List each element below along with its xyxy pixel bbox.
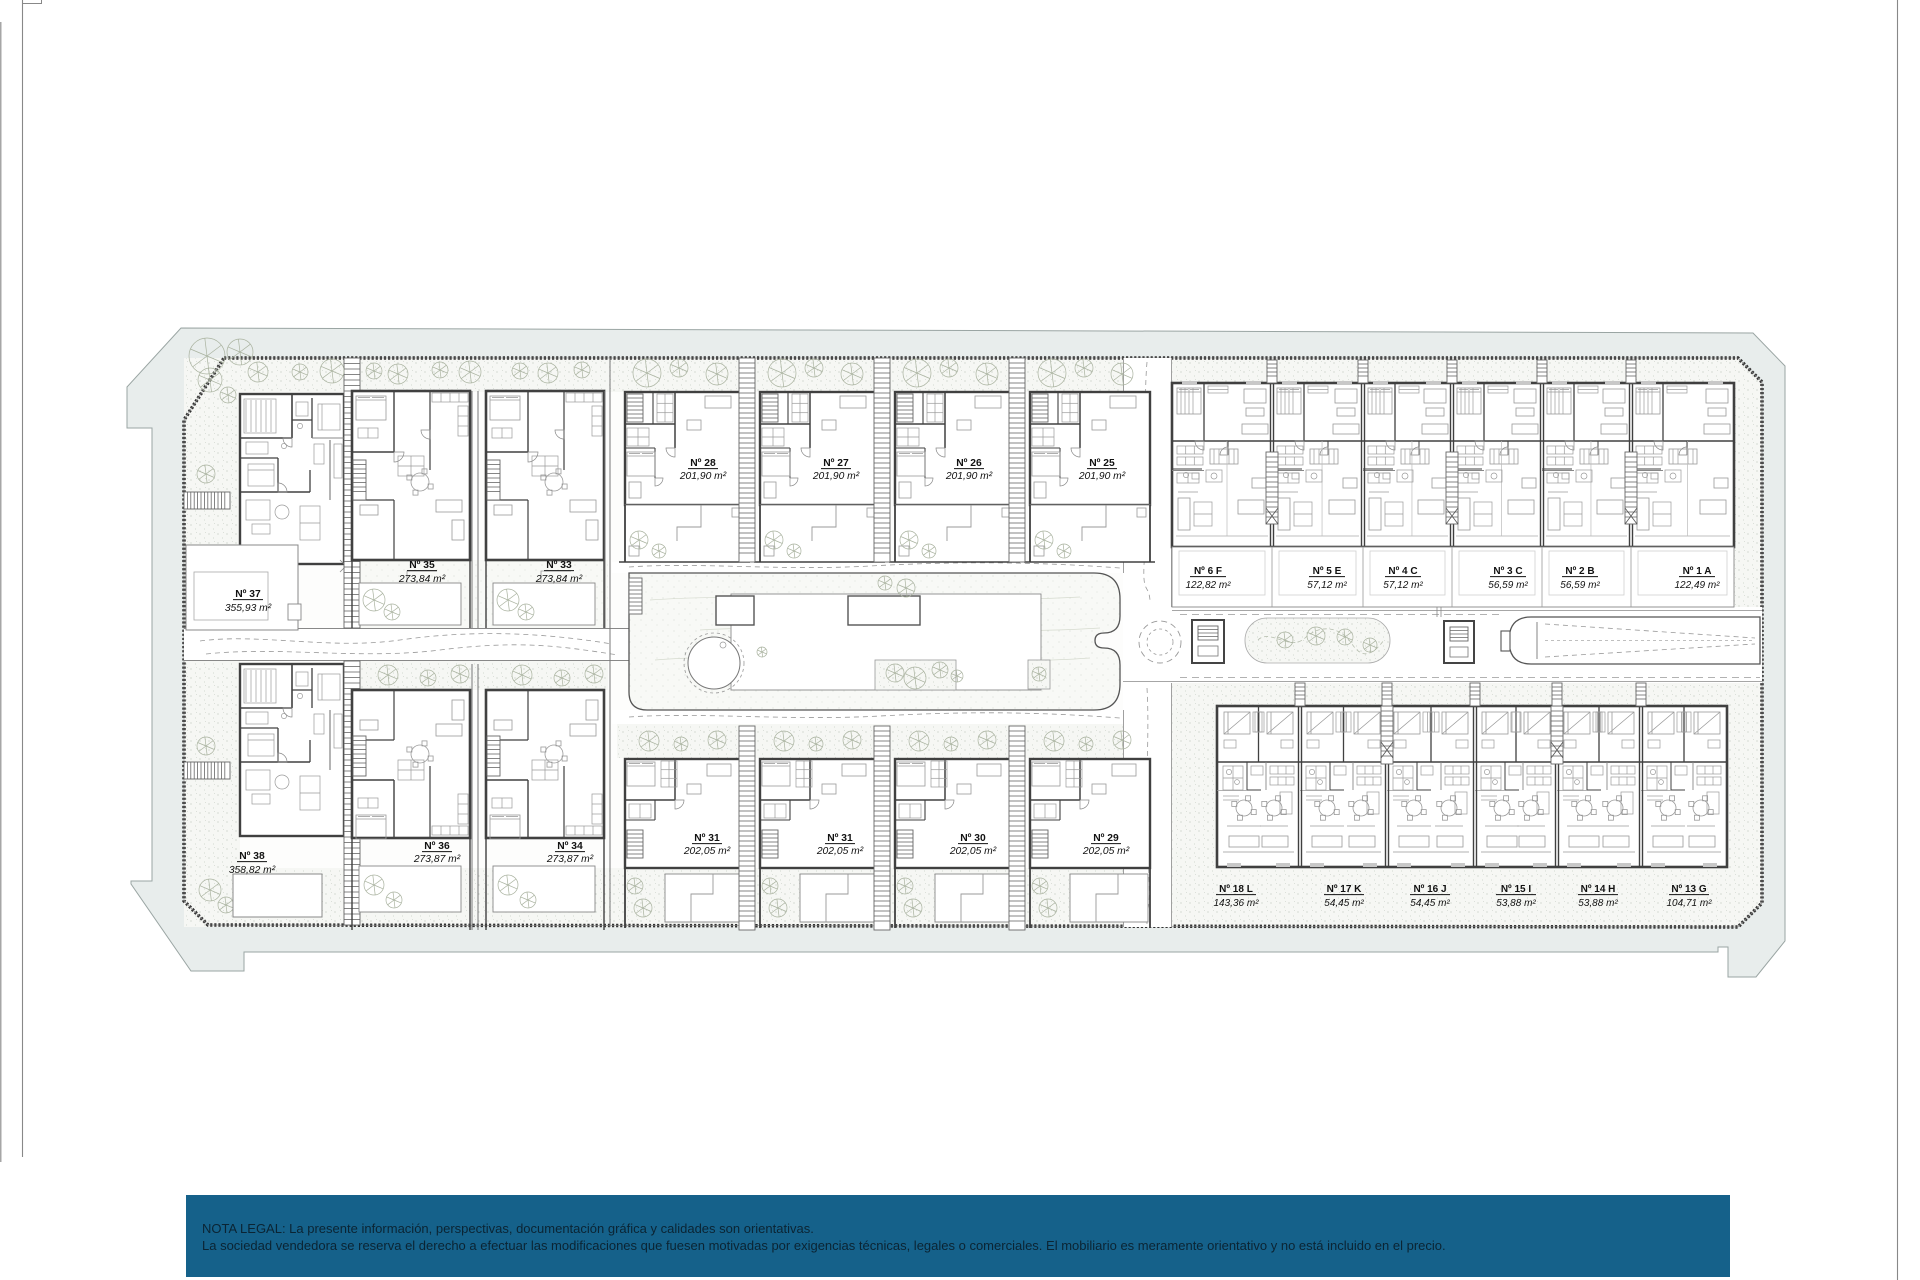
svg-text:273,87 m²: 273,87 m² [546, 854, 594, 865]
svg-text:122,82 m²: 122,82 m² [1185, 580, 1231, 591]
svg-text:Nº 35: Nº 35 [409, 560, 435, 571]
svg-text:Nº 16 J: Nº 16 J [1413, 884, 1446, 895]
svg-text:Nº 28: Nº 28 [690, 458, 716, 469]
svg-text:201,90 m²: 201,90 m² [812, 471, 860, 482]
svg-text:201,90 m²: 201,90 m² [679, 471, 727, 482]
svg-text:Nº 34: Nº 34 [557, 841, 583, 852]
svg-text:202,05 m²: 202,05 m² [1082, 846, 1130, 857]
svg-text:Nº 6 F: Nº 6 F [1194, 566, 1222, 577]
svg-text:Nº 36: Nº 36 [424, 841, 450, 852]
svg-text:122,49 m²: 122,49 m² [1674, 580, 1720, 591]
svg-text:273,84 m²: 273,84 m² [535, 574, 583, 585]
svg-text:Nº 5 E: Nº 5 E [1313, 566, 1342, 577]
svg-text:Nº 37: Nº 37 [235, 589, 261, 600]
svg-text:Nº 15 I: Nº 15 I [1501, 884, 1532, 895]
svg-text:Nº 25: Nº 25 [1089, 458, 1115, 469]
svg-text:57,12 m²: 57,12 m² [1307, 580, 1347, 591]
svg-text:202,05 m²: 202,05 m² [683, 846, 731, 857]
svg-text:202,05 m²: 202,05 m² [816, 846, 864, 857]
svg-text:Nº 18 L: Nº 18 L [1219, 884, 1253, 895]
svg-text:La sociedad vendedora se reser: La sociedad vendedora se reserva el dere… [202, 1238, 1446, 1253]
svg-text:Nº 26: Nº 26 [956, 458, 982, 469]
svg-text:Nº 38: Nº 38 [239, 851, 265, 862]
svg-text:355,93 m²: 355,93 m² [225, 603, 272, 614]
svg-text:201,90 m²: 201,90 m² [1078, 471, 1126, 482]
svg-text:Nº 17 K: Nº 17 K [1327, 884, 1363, 895]
svg-text:358,82 m²: 358,82 m² [229, 865, 276, 876]
svg-text:NOTA LEGAL: La presente inform: NOTA LEGAL: La presente información, per… [202, 1221, 814, 1236]
svg-text:Nº 14 H: Nº 14 H [1581, 884, 1616, 895]
svg-text:54,45 m²: 54,45 m² [1410, 898, 1450, 909]
svg-text:Nº 27: Nº 27 [823, 458, 849, 469]
svg-text:273,87 m²: 273,87 m² [413, 854, 461, 865]
svg-text:143,36 m²: 143,36 m² [1213, 898, 1259, 909]
svg-text:53,88 m²: 53,88 m² [1578, 898, 1618, 909]
svg-text:273,84 m²: 273,84 m² [398, 574, 446, 585]
svg-text:Nº 33: Nº 33 [546, 560, 572, 571]
svg-text:56,59 m²: 56,59 m² [1560, 580, 1600, 591]
svg-text:Nº 13 G: Nº 13 G [1671, 884, 1707, 895]
svg-text:Nº 4 C: Nº 4 C [1388, 566, 1417, 577]
svg-text:202,05 m²: 202,05 m² [949, 846, 997, 857]
svg-text:201,90 m²: 201,90 m² [945, 471, 993, 482]
svg-text:104,71 m²: 104,71 m² [1666, 898, 1712, 909]
svg-text:Nº 29: Nº 29 [1093, 833, 1119, 844]
svg-text:54,45 m²: 54,45 m² [1324, 898, 1364, 909]
svg-text:53,88 m²: 53,88 m² [1496, 898, 1536, 909]
svg-text:Nº 31: Nº 31 [694, 833, 720, 844]
svg-text:Nº 3 C: Nº 3 C [1493, 566, 1522, 577]
svg-text:56,59 m²: 56,59 m² [1488, 580, 1528, 591]
svg-text:Nº 2 B: Nº 2 B [1565, 566, 1594, 577]
svg-text:57,12 m²: 57,12 m² [1383, 580, 1423, 591]
svg-text:Nº 30: Nº 30 [960, 833, 986, 844]
svg-text:Nº 1 A: Nº 1 A [1683, 566, 1712, 577]
svg-text:Nº 31: Nº 31 [827, 833, 853, 844]
